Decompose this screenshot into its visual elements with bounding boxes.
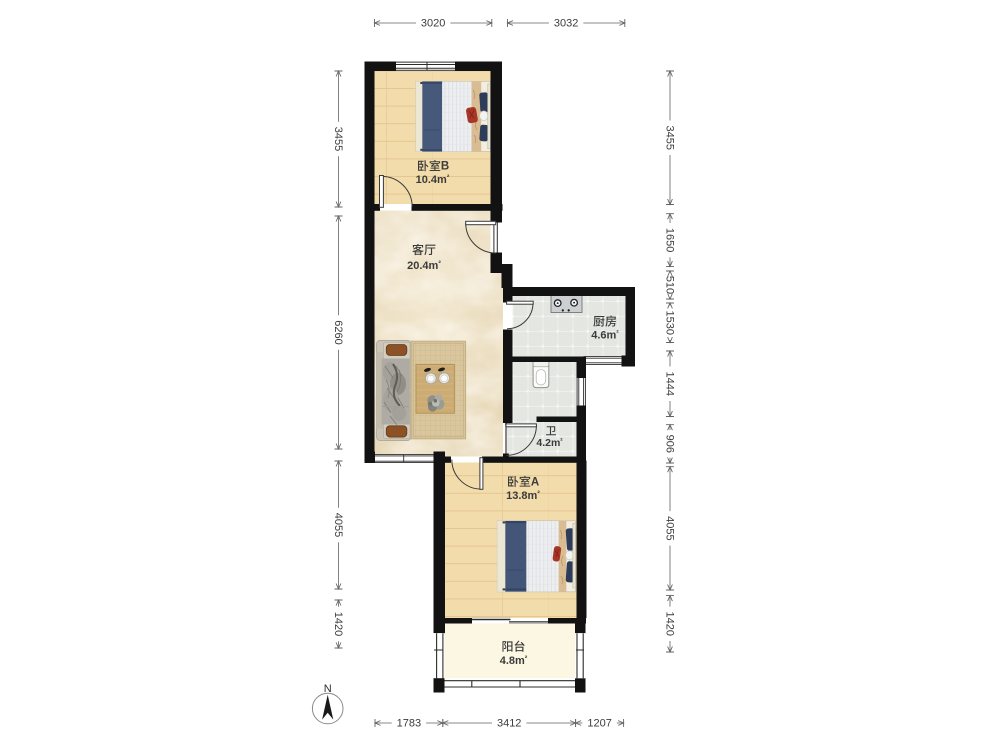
svg-text:13.8m²: 13.8m² <box>506 489 540 503</box>
svg-text:3412: 3412 <box>497 718 521 730</box>
svg-text:6260: 6260 <box>332 320 344 344</box>
svg-text:1530: 1530 <box>663 311 675 335</box>
svg-text:4.6m²: 4.6m² <box>591 328 619 342</box>
svg-text:4.2m²: 4.2m² <box>536 437 563 449</box>
svg-text:A: A <box>531 476 539 488</box>
svg-text:4055: 4055 <box>332 513 344 537</box>
svg-text:1650: 1650 <box>663 228 675 252</box>
svg-text:4.8m²: 4.8m² <box>500 654 528 668</box>
svg-text:1207: 1207 <box>587 718 611 730</box>
svg-text:1420: 1420 <box>332 612 344 636</box>
svg-text:510: 510 <box>663 276 675 294</box>
svg-text:1783: 1783 <box>397 718 421 730</box>
svg-text:3455: 3455 <box>332 127 344 151</box>
svg-text:906: 906 <box>663 435 675 453</box>
svg-text:B: B <box>441 161 449 173</box>
svg-text:N: N <box>324 683 332 695</box>
svg-text:20.4m²: 20.4m² <box>407 259 441 273</box>
svg-text:1444: 1444 <box>663 372 675 396</box>
svg-text:3032: 3032 <box>554 18 578 30</box>
svg-text:10.4m²: 10.4m² <box>416 173 450 187</box>
svg-text:4055: 4055 <box>663 516 675 540</box>
svg-text:3455: 3455 <box>663 126 675 150</box>
svg-text:3020: 3020 <box>421 18 445 30</box>
svg-text:1420: 1420 <box>663 612 675 636</box>
